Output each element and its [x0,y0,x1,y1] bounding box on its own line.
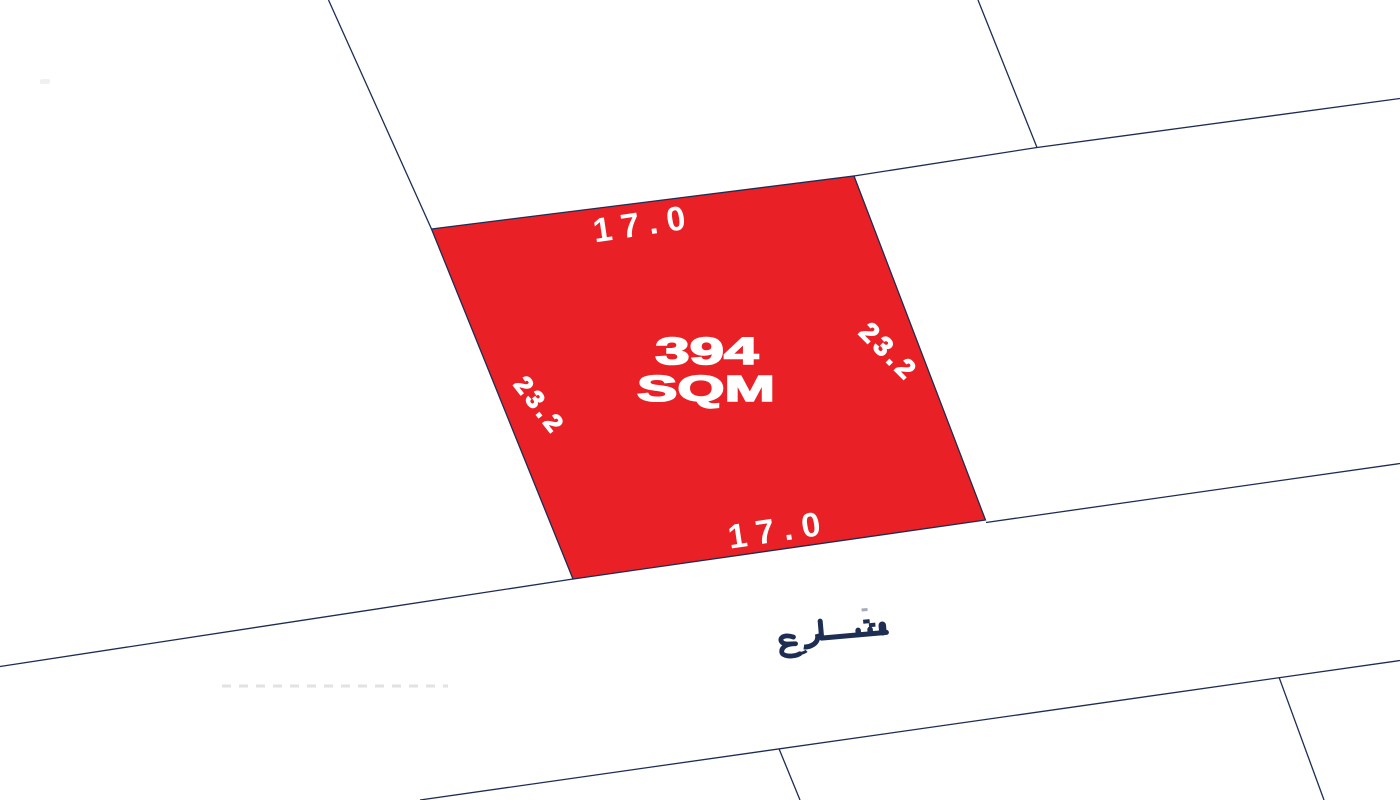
svg-text:SQM: SQM [637,368,775,409]
svg-text:394: 394 [655,331,758,373]
